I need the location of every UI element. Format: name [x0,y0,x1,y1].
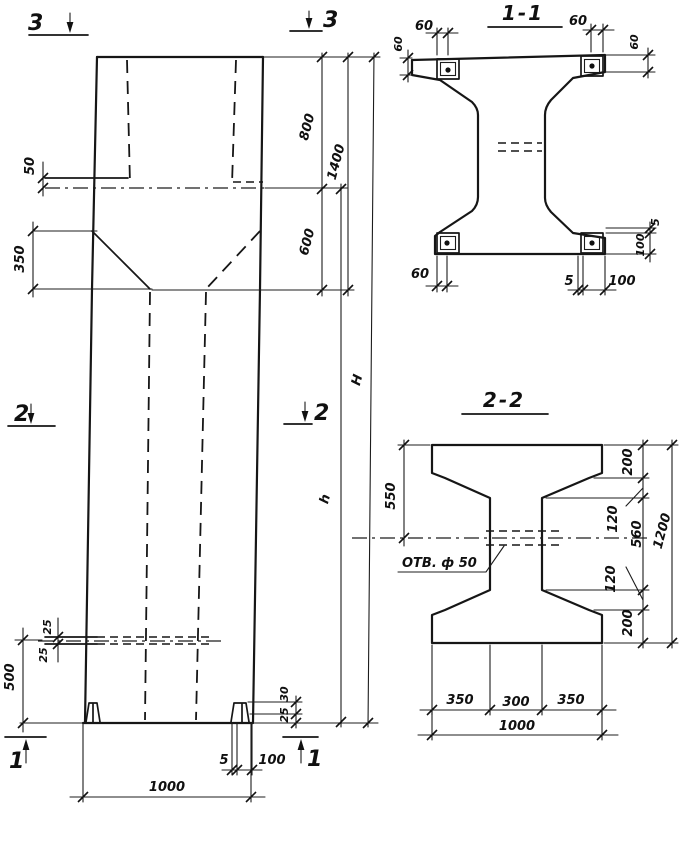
dim-plate-side-left: 60 [392,36,405,52]
dim-hole-upper: 25 [41,619,54,635]
embedded-plate-top-right [581,56,603,76]
dim-neck-segment: 600 [297,227,319,257]
base-lug-left [86,703,100,722]
section-mark-2-right: 2 [284,401,329,426]
section-1-1-view: 1-1 [392,1,662,295]
dim-flange-to-hole: 550 [384,482,399,509]
recess-left-hidden [127,60,130,184]
base-lug-right [231,703,249,722]
dim-shaft-height: h [317,493,334,506]
dim-section-width: 1000 [499,719,535,734]
mark-3-right-label: 3 [323,8,338,33]
web-left-hidden [145,292,150,720]
mark-1-right-label: 1 [307,747,322,772]
elevation-dimensions [15,52,380,802]
dim-web-clear: 560 [630,520,645,547]
dim-plate-offset-top-left: 60 [415,19,433,34]
drawing-sheet: 50 350 800 1400 600 H h 25 25 500 30 25 … [0,0,684,842]
dim-plate-width-bottom: 100 [608,274,635,289]
taper-right-diagonal-hidden [206,231,260,289]
hole-callout: ОТВ. ф 50 [398,546,504,572]
dim-plate-offset-top-right: 60 [569,14,587,29]
dim-fillet-bottom: 120 [604,565,619,592]
dim-web-width: 300 [502,695,529,710]
dim-plate-side-right: 60 [628,34,641,50]
dim-hole-lower: 25 [37,647,50,663]
section-2-2-dimensions [398,440,678,740]
web-right-hidden [196,292,206,720]
embedded-plate-bottom-right [581,233,603,253]
dim-flange-left: 350 [446,693,473,708]
mark-2-left-label: 2 [14,402,29,427]
mark-3-left-label: 3 [28,11,43,36]
dim-flange-bottom: 200 [621,609,636,636]
elevation-view: 50 350 800 1400 600 H h 25 25 500 30 25 … [3,8,380,802]
column-right-edge [253,57,263,722]
mark-2-right-label: 2 [314,401,329,426]
section-1-1-outline [412,55,605,254]
dim-lug-lower: 25 [278,707,291,723]
dim-base-height: 500 [3,663,18,690]
section-2-2-outline [432,445,602,643]
section-2-2-title: 2-2 [483,388,525,412]
recess-right-hidden [232,60,236,184]
dim-top-segment: 800 [297,112,319,142]
section-1-1-hole-hidden [498,143,542,151]
section-mark-1-right: 1 [283,737,322,772]
dim-plate-gap-bottom: 5 [564,274,573,289]
section-mark-1-left: 1 [5,737,46,774]
section-1-1-title: 1-1 [502,1,544,25]
dim-ledge-offset: 50 [23,157,38,175]
dim-plate-gap-right: 5 [649,218,662,226]
dim-taper-height: 350 [13,245,28,272]
section-2-2-view: 2-2 ОТВ. ф 50 550 200 120 560 120 2 [352,388,678,740]
dim-flange-right: 350 [557,693,584,708]
embedded-plate-top-left [437,59,459,79]
dim-flange-top: 200 [621,448,636,475]
section-mark-2-left: 2 [8,402,55,427]
dim-lug-width: 100 [258,753,285,768]
dim-plate-offset-bottom: 60 [411,267,429,282]
taper-left-diagonal [92,231,150,289]
engineering-drawing: 50 350 800 1400 600 H h 25 25 500 30 25 … [0,0,684,842]
column-left-edge [85,57,97,722]
dim-fillet-top: 120 [606,505,621,532]
embedded-plate-bottom-left [437,233,459,253]
dim-section-height: 1200 [651,512,675,551]
dim-top-total: 1400 [325,143,349,182]
mark-1-left-label: 1 [9,749,24,774]
section-mark-3-right: 3 [290,8,338,33]
dim-lug-upper: 30 [278,686,291,702]
dim-lug-thickness: 5 [219,753,228,768]
dim-total-height: H [349,373,366,388]
dim-base-width: 1000 [149,780,185,795]
dim-plate-width-right: 100 [634,233,647,256]
hole-callout-label: ОТВ. ф 50 [402,556,477,571]
section-mark-3-left: 3 [28,11,88,36]
